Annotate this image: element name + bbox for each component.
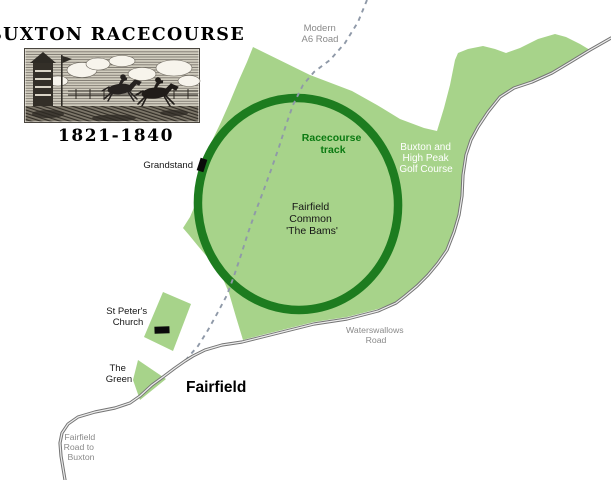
fairfield-common-label-line2: Common <box>289 213 332 225</box>
fairfield-road-label-line1: Fairfield <box>64 432 95 442</box>
the-green-label-line2: Green <box>106 374 132 385</box>
st-peters-church-label-line2: Church <box>113 317 144 328</box>
page-title: BUXTON RACECOURSE <box>0 25 245 45</box>
racecourse-track-label-line2: track <box>320 144 345 156</box>
fairfield-common-label-line3: 'The Bams' <box>286 225 338 237</box>
golf-course-label-line1: Buxton and <box>400 142 451 153</box>
golf-course-label-line3: Golf Course <box>399 164 453 175</box>
golf-course-label-line2: High Peak <box>403 153 450 164</box>
the-green-label: The Green <box>106 363 132 385</box>
modern-a6-road-label-line2: A6 Road <box>302 34 339 45</box>
the-green-label-line1: The <box>109 363 125 374</box>
map-canvas: BUXTON RACECOURSE <box>0 0 611 480</box>
waterswallows-road-label-line2: Road <box>366 335 387 345</box>
st-peters-church-label-line1: St Peter's <box>106 306 147 317</box>
modern-a6-road-label: Modern A6 Road <box>302 23 339 45</box>
fairfield-common-label-line1: Fairfield <box>292 201 330 213</box>
waterswallows-road-label: Waterswallows Road <box>346 325 406 345</box>
engraving-tower <box>30 52 56 106</box>
grandstand-label: Grandstand <box>143 160 193 171</box>
racecourse-track-label-line1: Racecourse <box>302 132 362 144</box>
modern-a6-road-label-line1: Modern <box>304 23 336 34</box>
period-label: 1821-1840 <box>58 126 174 146</box>
racecourse-engraving <box>25 49 201 123</box>
waterswallows-road-label-line1: Waterswallows <box>346 325 404 335</box>
fairfield-road-label: Fairfield Road to Buxton <box>64 432 98 462</box>
church-marker <box>154 326 169 334</box>
church-plot-area <box>144 292 191 351</box>
fairfield-common-label: Fairfield Common 'The Bams' <box>286 201 338 237</box>
fairfield-town-label: Fairfield <box>186 379 246 396</box>
fairfield-road-label-line3: Buxton <box>67 452 94 462</box>
st-peters-church-label: St Peter's Church <box>106 306 150 328</box>
page: BUXTON RACECOURSE <box>0 0 611 480</box>
golf-course-label: Buxton and High Peak Golf Course <box>399 142 453 175</box>
fairfield-road-label-line2: Road to <box>64 442 95 452</box>
